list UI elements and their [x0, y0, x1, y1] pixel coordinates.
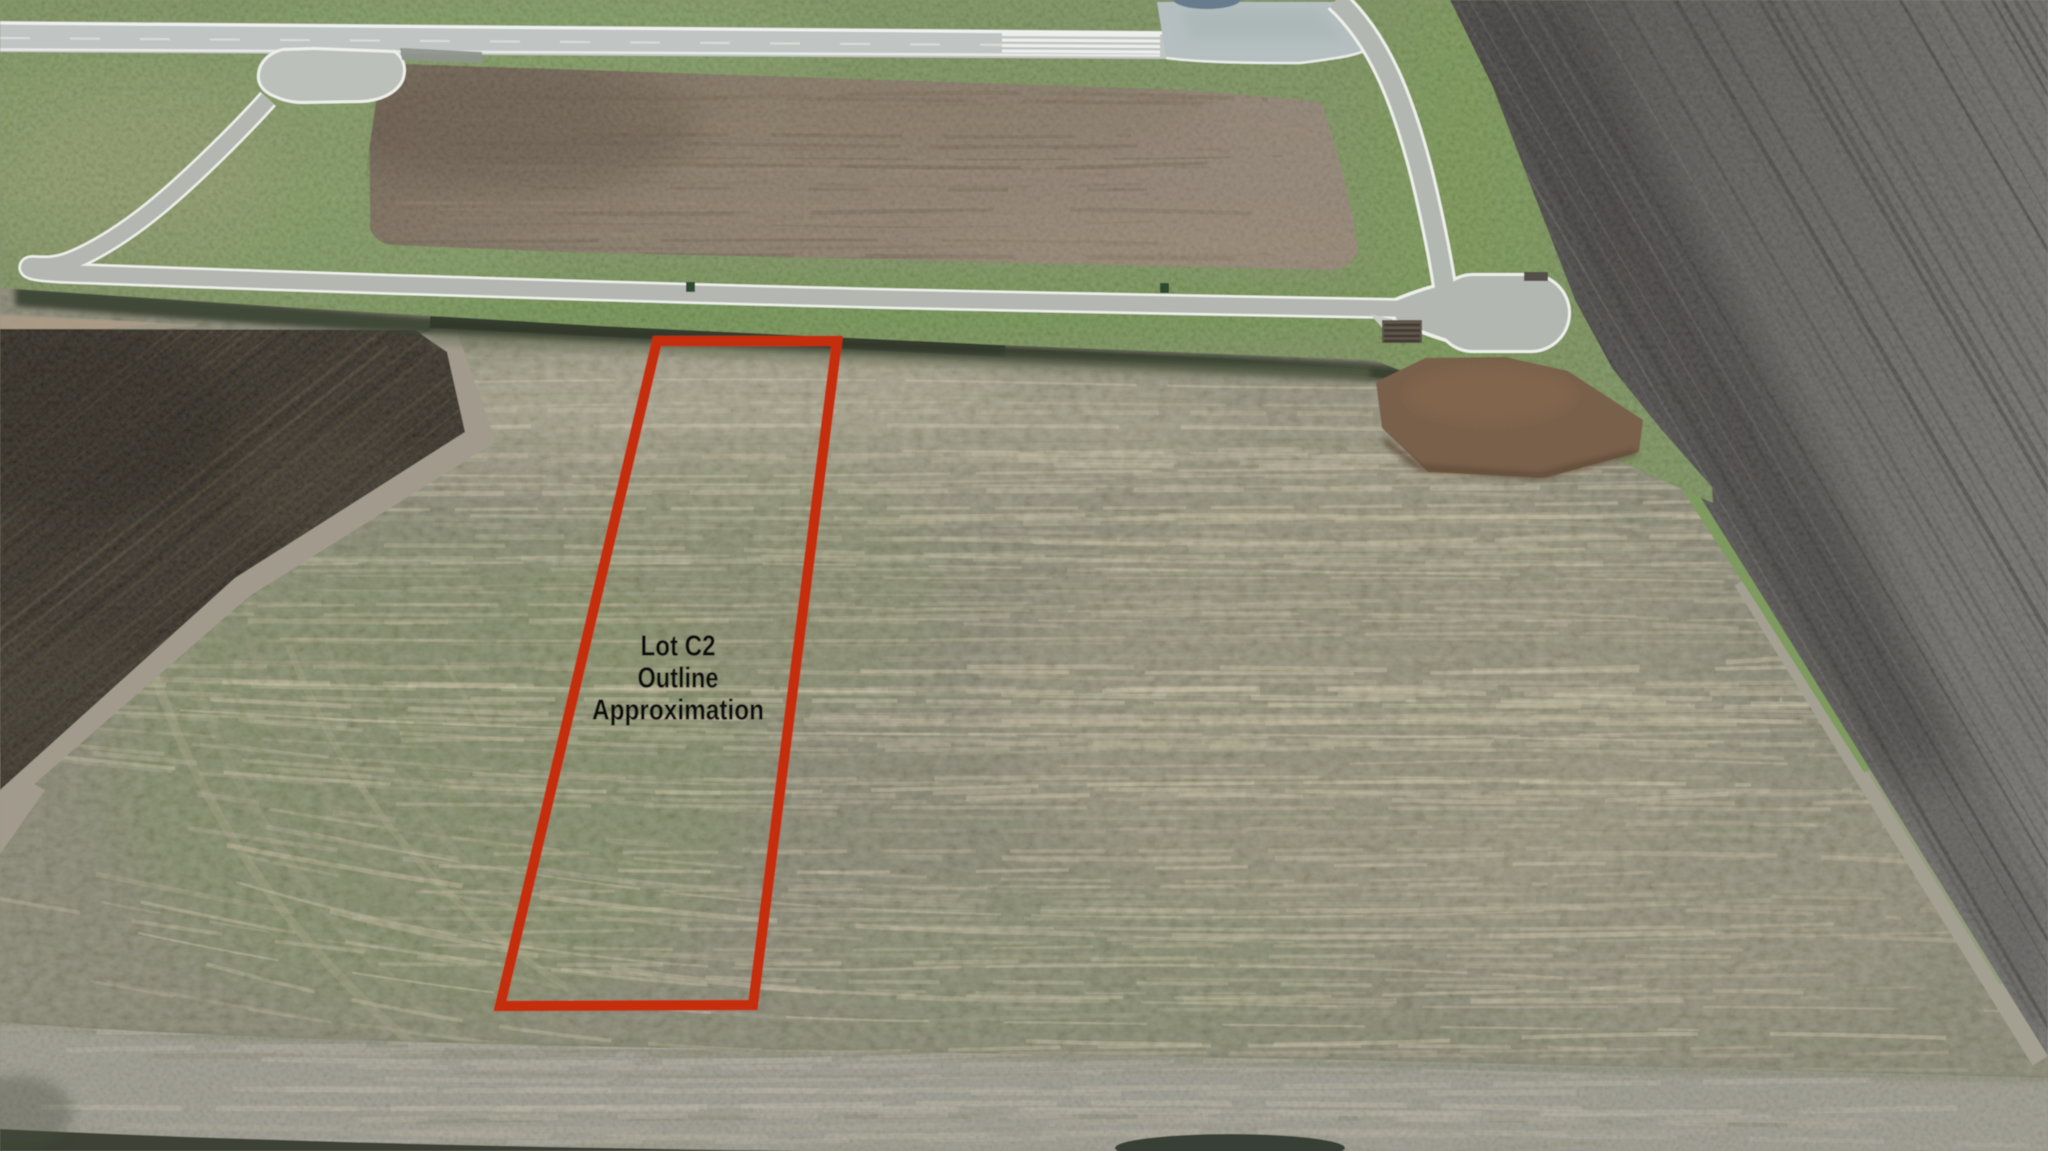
svg-text:Approximation: Approximation — [592, 695, 764, 727]
svg-text:Outline: Outline — [638, 662, 719, 694]
svg-text:Lot C2: Lot C2 — [641, 631, 716, 663]
